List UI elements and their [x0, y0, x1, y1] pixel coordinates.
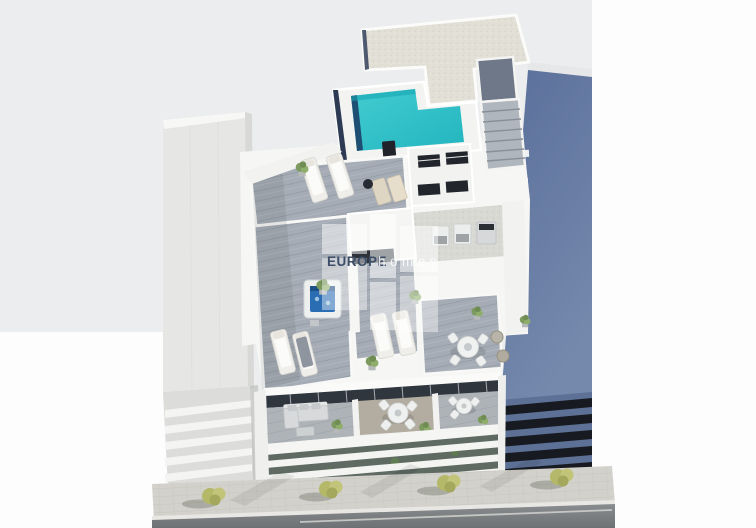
render-canvas: EUROPE homes: [0, 0, 756, 528]
watermark-text-light: homes: [378, 254, 441, 269]
ac-units: [432, 222, 496, 246]
architectural-render: EUROPE homes: [0, 0, 756, 528]
wicker-chair: [497, 350, 509, 362]
wicker-chair: [491, 331, 503, 343]
coffee-table: [296, 426, 315, 436]
folded-parasol: [363, 179, 373, 189]
right-wall-band: [502, 200, 528, 335]
backdrop-lower-left: [0, 332, 170, 528]
stairwell: [408, 144, 474, 206]
